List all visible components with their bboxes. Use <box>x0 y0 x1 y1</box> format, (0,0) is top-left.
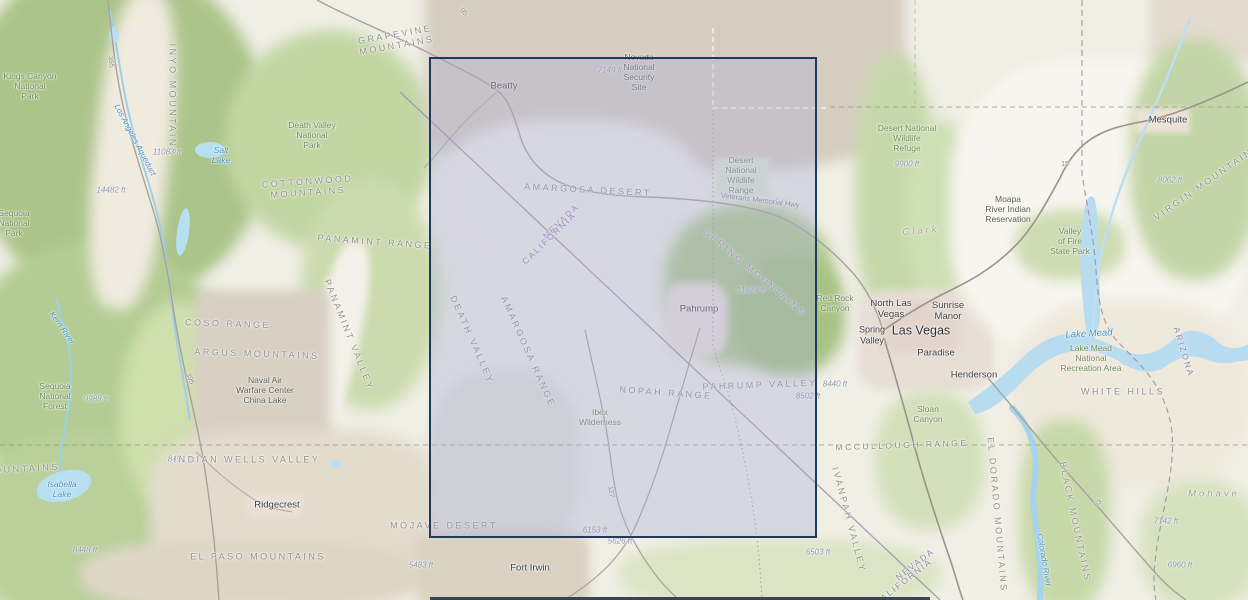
map-label-kern-river: Kern River <box>47 310 76 346</box>
map-label-black-mountains: BLACK MOUNTAINS <box>1057 461 1093 583</box>
map-label-colorado-river: Colorado River <box>1035 533 1054 587</box>
map-label-grapevine-mountains: GRAPEVINEMOUNTAINS <box>357 23 435 57</box>
map-label-sequoia-nf: SequoiaNationalForest <box>39 381 70 411</box>
map-label-elev-9900: 9900 ft <box>895 159 919 168</box>
map-label-sequoia-np: SequoiaNationalPark <box>0 208 30 238</box>
map-label-arizona-label: ARIZONA <box>1172 326 1197 378</box>
map-label-california-label-2: CALIFORNIA <box>872 556 934 600</box>
map-label-elev-8440: 8440 ft <box>823 379 847 388</box>
map-label-route-93: 93 <box>1093 498 1104 509</box>
map-label-red-rock-canyon: Red RockCanyon <box>816 293 853 313</box>
map-label-sloan-canyon: SloanCanyon <box>913 404 942 424</box>
map-label-panamint-valley: PANAMINT VALLEY <box>322 278 376 392</box>
map-label-elev-9988: 9988 ft <box>84 394 108 403</box>
map-label-kings-canyon-np: Kings CanyonNationalPark <box>4 71 57 101</box>
map-label-ivanpah-valley: IVANPAH VALLEY <box>830 466 868 574</box>
map-label-elev-5483: 5483 ft <box>409 560 433 569</box>
map-label-salt-lake: SaltLake <box>212 145 230 165</box>
map-label-route-95: 95 <box>457 7 468 18</box>
map-label-route-395-south: 395 <box>183 372 195 386</box>
map-label-route-395-north: 395 <box>105 56 114 68</box>
map-label-el-dorado-mountains: EL DORADO MOUNTAINS <box>985 437 1009 593</box>
map-label-moapa-reservation: MoapaRiver IndianReservation <box>985 194 1030 224</box>
map-label-spring-valley-city: SpringValley <box>859 324 885 345</box>
map-label-lake-mead: Lake Mead <box>1065 327 1113 341</box>
map-label-cottonwood-mountains: COTTONWOODMOUNTAINS <box>261 173 354 201</box>
map-label-elev-8448: 8448 ft <box>73 545 97 554</box>
map-label-isabella-lake: IsabellaLake <box>47 479 76 499</box>
selection-rectangle[interactable] <box>429 57 817 538</box>
map-label-lake-mead-nra: Lake MeadNationalRecreation Area <box>1061 343 1122 373</box>
map-label-elev-11083: 11083 ft <box>153 147 181 156</box>
map-label-death-valley-np: Death ValleyNationalPark <box>288 120 336 150</box>
map-label-elev-7142: 7142 ft <box>1154 516 1178 525</box>
map-label-paradise: Paradise <box>917 347 955 358</box>
map-label-white-hills: WHITE HILLS <box>1081 387 1165 398</box>
map-label-elev-6503: 6503 ft <box>806 547 830 556</box>
map-label-henderson: Henderson <box>951 369 997 380</box>
map-label-elev-8062: 8062 ft <box>1158 175 1182 184</box>
map-label-panamint-range: PANAMINT RANGE <box>317 233 433 252</box>
map-label-argus-mountains: ARGUS MOUNTAINS <box>194 347 320 362</box>
map-label-el-paso-mountains: EL PASO MOUNTAINS <box>190 552 326 563</box>
map-label-los-angeles-aqueduct: Los Angeles Aqueduct <box>112 103 158 178</box>
map-label-mccullough-range: MCCULLOUGH RANGE <box>835 438 968 453</box>
map-label-desert-nwr-refuge: Desert NationalWildlifeRefuge <box>878 123 937 153</box>
map-label-ridgecrest: Ridgecrest <box>254 499 299 510</box>
map-label-indian-wells-valley: INDIAN WELLS VALLEY <box>174 455 321 466</box>
map-label-elev-6960: 6960 ft <box>1168 560 1192 569</box>
map-label-valley-of-fire: Valleyof FireState Park <box>1050 226 1090 256</box>
map-label-fort-irwin: Fort Irwin <box>510 562 550 573</box>
map-label-mesquite: Mesquite <box>1149 114 1188 125</box>
map-label-route-15: 15 <box>1061 161 1069 169</box>
map-label-las-vegas: Las Vegas <box>892 324 950 339</box>
map-label-elev-14482: 14482 ft <box>97 185 126 194</box>
map-label-coso-range: COSO RANGE <box>185 317 271 331</box>
map-label-mohave-county: Mohave <box>1188 488 1240 499</box>
map-label-sunrise-manor: SunriseManor <box>932 300 964 322</box>
map-label-naval-air-warfare-center: Naval AirWarfare CenterChina Lake <box>236 375 294 405</box>
map-label-north-las-vegas: North LasVegas <box>870 298 911 320</box>
map-canvas[interactable]: Kings CanyonNationalParkINYO MOUNTAINSLo… <box>0 0 1248 600</box>
map-label-inyo-mountains: INYO MOUNTAINS <box>167 44 178 157</box>
map-label-mountains-cut: MOUNTAINS <box>0 462 60 477</box>
map-label-clark-county: Clark <box>902 224 940 238</box>
